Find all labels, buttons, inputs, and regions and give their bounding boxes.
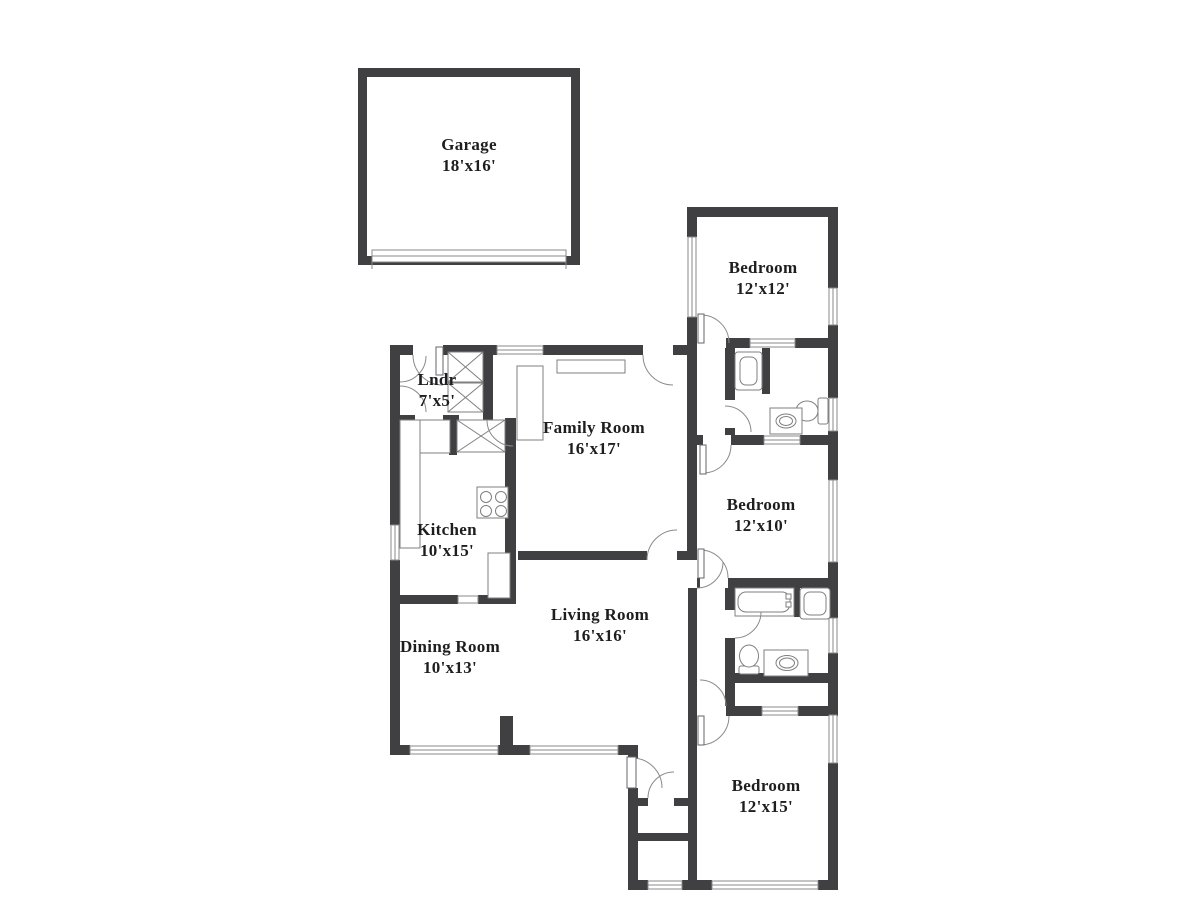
sink-vanity-icon — [770, 408, 802, 434]
bedroom2-door-leaf — [700, 445, 706, 474]
pantry-closet-icon — [457, 420, 505, 452]
fireplace-icon — [557, 360, 625, 373]
bathtub-icon — [735, 588, 794, 616]
shower-icon — [735, 352, 762, 390]
sink-vanity-icon — [764, 650, 808, 676]
front-door-leaf — [627, 757, 636, 788]
laundry-door-leaf — [436, 347, 443, 375]
fixtures — [400, 352, 830, 676]
family-back-door-arc — [643, 355, 673, 385]
bedroom1-door-arc — [701, 315, 729, 343]
washer-dryer-icon — [448, 352, 483, 412]
bedroom3-door-leaf — [698, 716, 704, 745]
windows — [372, 237, 837, 889]
floor-plan: Garage 18'x16' Lndr 7'x5' Family Room 16… — [0, 0, 1200, 900]
laundry-closet-arc — [400, 386, 426, 412]
toilet-icon — [739, 645, 759, 674]
entry-closet-door-arc — [648, 772, 674, 798]
bedroom1-door-leaf — [698, 314, 704, 343]
kitchen-island-icon — [517, 366, 543, 440]
stove-icon — [477, 487, 508, 518]
bedroom2-hall-door-leaf — [698, 549, 704, 578]
shower-icon — [800, 588, 830, 619]
bedroom2-door-arc — [703, 445, 731, 473]
hall-door-arc — [700, 680, 726, 706]
family-living-door-arc — [647, 530, 677, 560]
floor-plan-drawing — [0, 0, 1200, 900]
window — [391, 237, 837, 889]
garage-door — [372, 250, 566, 269]
walls — [358, 68, 838, 890]
